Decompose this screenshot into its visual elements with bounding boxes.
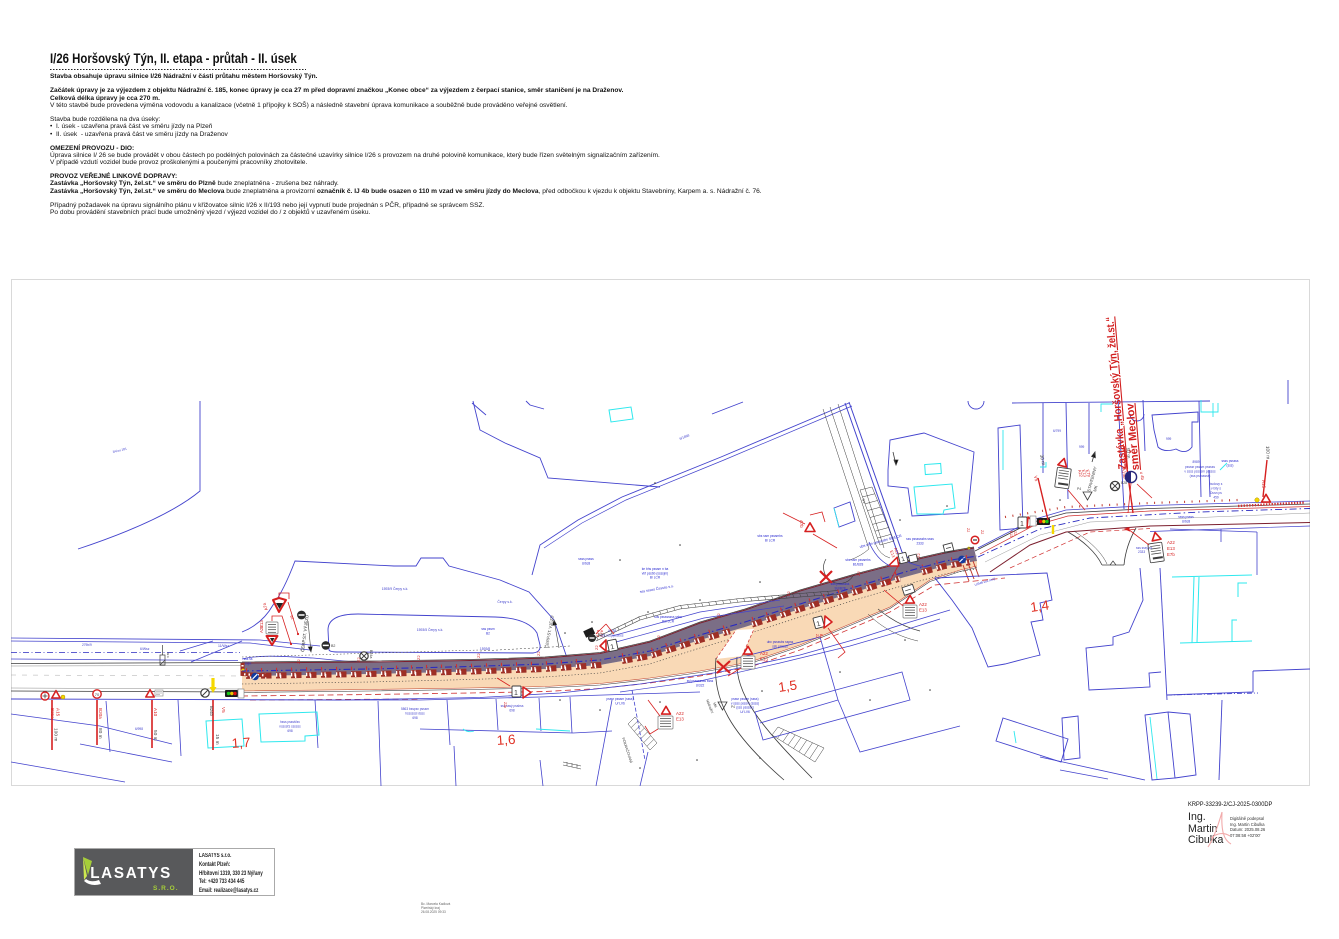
svg-text:70: 70 — [95, 692, 100, 697]
svg-text:U/ LV6: U/ LV6 — [615, 701, 625, 705]
svg-text:Z2: Z2 — [594, 645, 599, 650]
svg-text:1,4: 1,4 — [1029, 597, 1050, 615]
svg-text:E13: E13 — [259, 620, 264, 628]
svg-text:A10: A10 — [153, 708, 158, 717]
svg-text:2333: 2333 — [916, 541, 923, 545]
svg-text:ssjm: ssjm — [245, 661, 252, 665]
svg-text:80 m: 80 m — [97, 728, 103, 739]
svg-text:49 b: 49 b — [166, 652, 170, 658]
svg-text:Z2: Z2 — [786, 591, 791, 596]
svg-text:budovy s: budovy s — [1210, 482, 1223, 486]
svg-text:Z2: Z2 — [296, 659, 301, 664]
svg-text:(sss psssssss): (sss psssssss) — [1190, 474, 1211, 478]
svg-text:U/6c8: U/6c8 — [582, 561, 591, 565]
svg-text:A15: A15 — [1261, 480, 1266, 489]
svg-text:v ssss pssssm psssss: v ssss pssssm psssss — [1184, 470, 1216, 474]
svg-text:B2: B2 — [331, 644, 335, 648]
svg-text:Čerpy s.k.: Čerpy s.k. — [497, 599, 512, 604]
svg-text:A22: A22 — [760, 651, 768, 656]
svg-text:Z2: Z2 — [980, 530, 984, 534]
svg-text:E13: E13 — [1009, 531, 1013, 537]
svg-text:nssssťs ssssss: nssssťs ssssss — [279, 725, 301, 729]
svg-text:A22: A22 — [676, 711, 684, 716]
svg-text:698: 698 — [287, 729, 293, 733]
svg-text:6/998: 6/998 — [135, 727, 143, 731]
svg-text:B2: B2 — [598, 633, 602, 637]
svg-text:B2/ LCR: B2/ LCR — [662, 619, 675, 623]
svg-text:B21a: B21a — [50, 708, 55, 719]
svg-text:hsss psssšťsv: hsss psssšťsv — [280, 720, 300, 724]
svg-text:E13: E13 — [919, 608, 927, 613]
svg-text:ssb psssss: ssb psssss — [772, 644, 788, 648]
svg-text:698: 698 — [509, 709, 515, 713]
svg-text:5863 bsspsv psssm: 5863 bsspsv psssm — [401, 707, 429, 711]
svg-text:1593/5 Čerpy s.k.: 1593/5 Čerpy s.k. — [417, 627, 444, 632]
svg-text:999: 999 — [1079, 445, 1085, 449]
svg-text:6/799: 6/799 — [1053, 429, 1061, 433]
svg-text:E7b: E7b — [1167, 552, 1175, 557]
svg-text:Z2: Z2 — [916, 553, 921, 558]
svg-text:1,7: 1,7 — [231, 735, 251, 751]
svg-text:P4: P4 — [731, 705, 735, 709]
svg-text:Z2: Z2 — [656, 635, 661, 640]
svg-text:A22: A22 — [919, 602, 927, 607]
svg-text:100 m: 100 m — [1264, 446, 1271, 460]
svg-text:100 m: 100 m — [53, 728, 59, 741]
svg-text:1,5: 1,5 — [777, 678, 798, 695]
svg-text:1: 1 — [1020, 521, 1024, 528]
svg-text:Z2: Z2 — [416, 655, 421, 660]
svg-text:E13: E13 — [760, 657, 768, 662]
svg-text:1,6: 1,6 — [496, 732, 516, 748]
svg-text:B28: B28 — [1121, 481, 1127, 485]
svg-text:U/322: U/322 — [696, 683, 705, 687]
svg-text:Z2: Z2 — [716, 613, 721, 618]
svg-text:U/ LV6: U/ LV6 — [740, 710, 750, 714]
svg-text:Z2: Z2 — [536, 651, 541, 656]
svg-text:V5: V5 — [221, 707, 226, 713]
svg-text:459: 459 — [1213, 496, 1219, 500]
svg-text:2333: 2333 — [1138, 550, 1145, 554]
svg-text:698: 698 — [412, 716, 418, 720]
svg-text:999: 999 — [1166, 437, 1172, 441]
svg-text:U/6c8: U/6c8 — [1182, 519, 1191, 523]
svg-text:E13: E13 — [676, 717, 684, 722]
svg-text:(sss): (sss) — [1227, 463, 1234, 467]
svg-text:Z2: Z2 — [966, 528, 970, 532]
svg-text:hssssssl dsss: hssssssl dsss — [405, 712, 425, 716]
svg-text:v bity s: v bity s — [1211, 487, 1221, 491]
svg-text:pssssr psssm psssss: pssssr psssm psssss — [1185, 465, 1215, 469]
svg-text:P4: P4 — [1077, 487, 1081, 491]
svg-text:15 m: 15 m — [214, 734, 220, 745]
svg-text:6/Wsz: 6/Wsz — [140, 647, 150, 651]
svg-text:1593/9 Čerpy s.k.: 1593/9 Čerpy s.k. — [382, 586, 409, 591]
svg-text:B1/B28: B1/B28 — [853, 562, 864, 566]
svg-text:279b/9: 279b/9 — [82, 643, 92, 647]
svg-text:A22: A22 — [1167, 540, 1175, 545]
svg-text:SU/B28: SU/B28 — [835, 586, 846, 590]
svg-text:B/ LCR: B/ LCR — [765, 538, 776, 542]
svg-text:E13: E13 — [1167, 546, 1175, 551]
svg-text:B2: B2 — [486, 631, 490, 635]
svg-text:B24b: B24b — [209, 706, 214, 716]
svg-text:Z2: Z2 — [856, 571, 861, 576]
svg-text:Z2b: Z2b — [503, 702, 507, 708]
svg-text:Z2: Z2 — [815, 634, 819, 638]
svg-text:LASATYS: LASATYS — [90, 865, 172, 882]
svg-text:Z2: Z2 — [476, 653, 481, 658]
svg-text:11/Wsz: 11/Wsz — [218, 644, 229, 648]
svg-text:B/ LCR: B/ LCR — [650, 576, 661, 580]
svg-text:A15: A15 — [56, 708, 61, 717]
svg-text:sss sssý pssbss: sss sssý pssbss — [601, 634, 624, 638]
svg-text:S.R.O.: S.R.O. — [153, 885, 179, 892]
svg-text:B24a: B24a — [369, 650, 373, 658]
svg-text:B20a: B20a — [98, 708, 103, 719]
svg-text:1: 1 — [514, 690, 518, 697]
svg-text:Dusn ps: Dusn ps — [1210, 491, 1222, 495]
svg-text:B1: B1 — [819, 634, 823, 638]
svg-text:50 m: 50 m — [152, 730, 158, 741]
svg-text:8989: 8989 — [1192, 460, 1199, 464]
